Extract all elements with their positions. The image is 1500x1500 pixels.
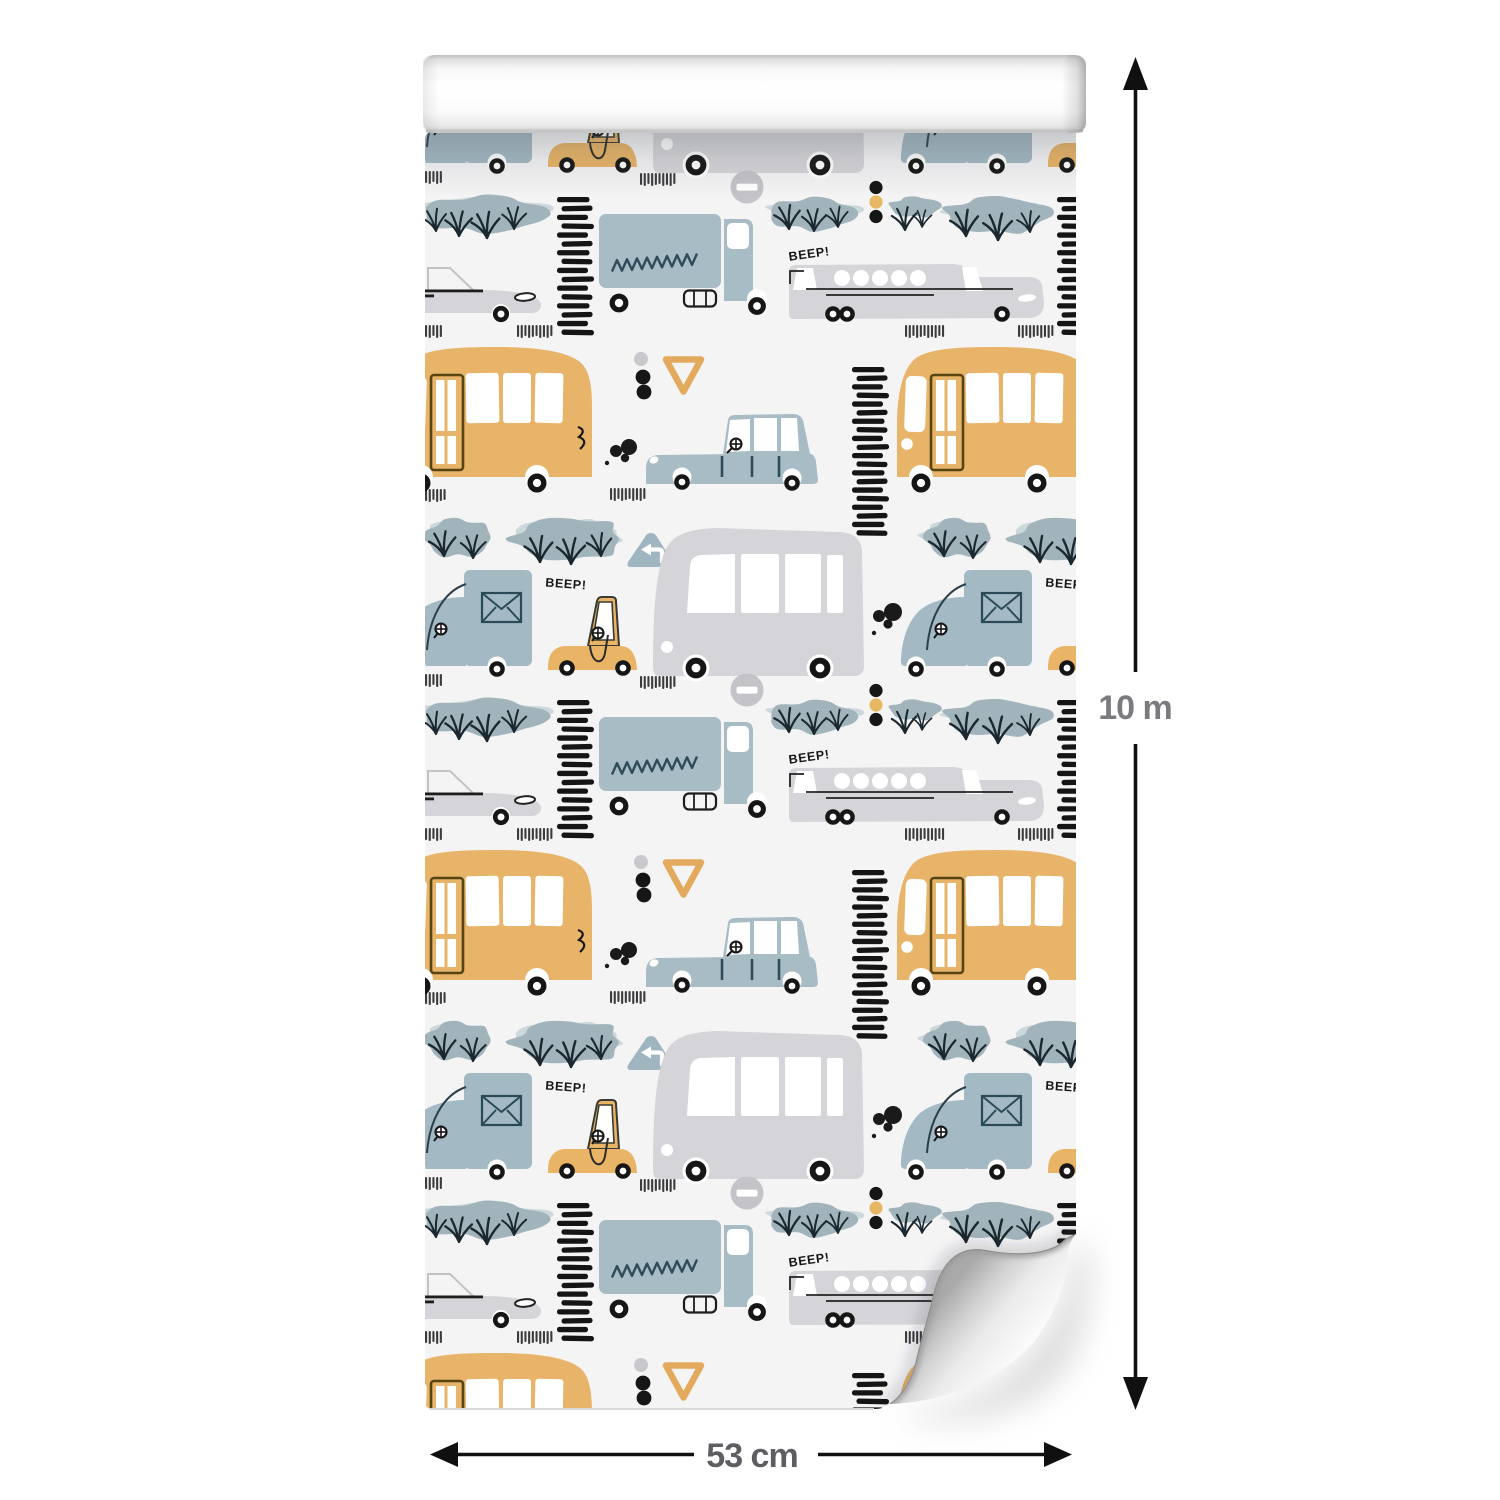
svg-text:53 cm: 53 cm — [706, 1437, 797, 1475]
svg-text:10 m: 10 m — [1098, 689, 1172, 727]
